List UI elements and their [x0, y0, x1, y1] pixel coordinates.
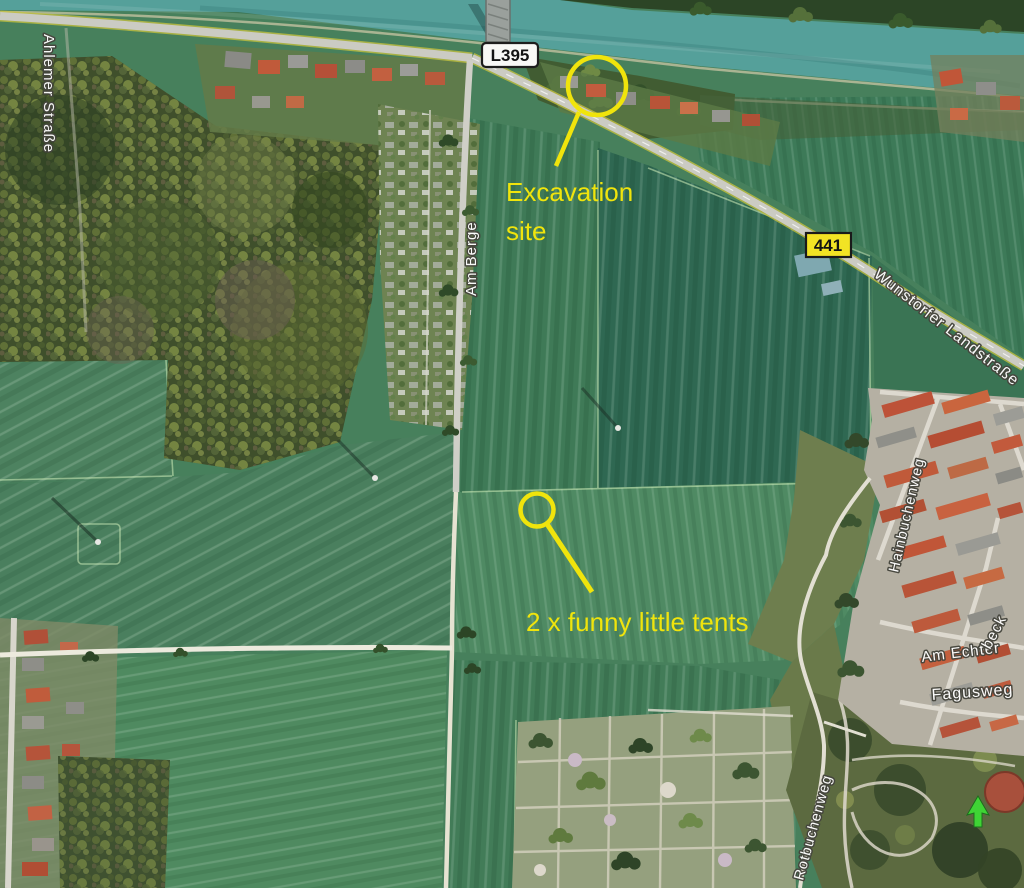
excavation-label-line2: site — [506, 216, 546, 246]
cemetery-park — [512, 706, 796, 888]
road-badge-l395: L395 — [482, 43, 538, 67]
road-badge-l395-text: L395 — [491, 46, 530, 65]
road-badge-441-text: 441 — [814, 236, 842, 255]
street-label-am-berge: Am Berge — [463, 221, 480, 296]
tents-label: 2 x funny little tents — [526, 607, 749, 637]
street-label-ahlemer-strasse: Ahlemer Straße — [40, 34, 57, 153]
excavation-label-line1: Excavation — [506, 177, 633, 207]
road-badge-441: 441 — [806, 233, 851, 257]
satellite-map-canvas[interactable]: Ahlemer Straße Am Berge Wunstorfer Lands… — [0, 0, 1024, 888]
residential-quarter — [835, 388, 1024, 756]
